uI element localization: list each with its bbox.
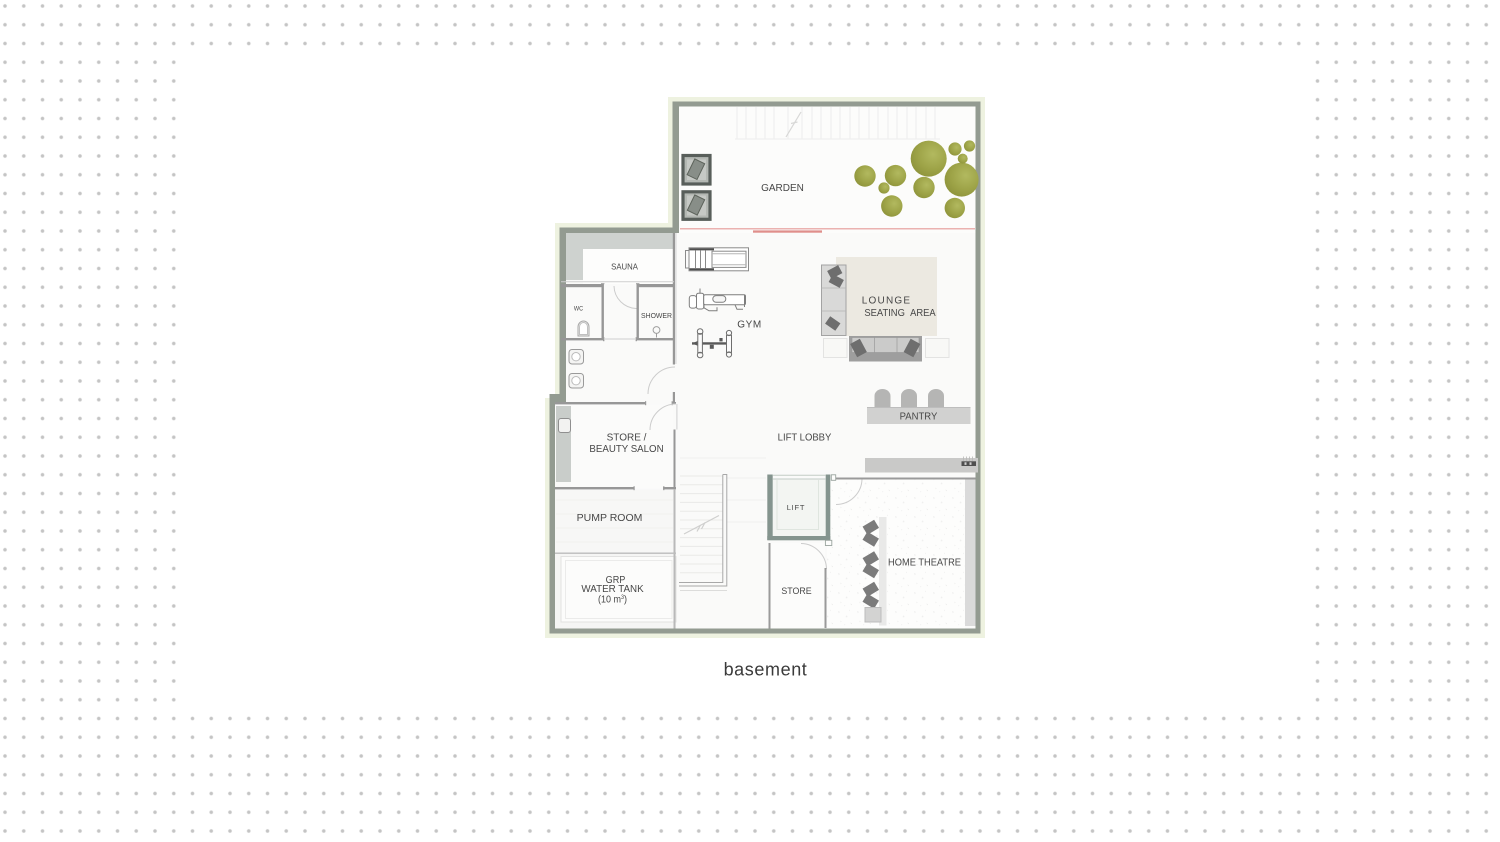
svg-text:PUMP ROOM: PUMP ROOM xyxy=(577,512,643,524)
svg-text:SHOWER: SHOWER xyxy=(641,311,672,320)
svg-text:basement: basement xyxy=(724,660,808,680)
svg-text:PANTRY: PANTRY xyxy=(900,411,938,422)
svg-text:STORE: STORE xyxy=(781,586,811,596)
svg-text:HOME THEATRE: HOME THEATRE xyxy=(888,557,961,568)
svg-text:LIFT LOBBY: LIFT LOBBY xyxy=(778,432,832,443)
svg-text:LIFT: LIFT xyxy=(787,503,806,512)
svg-text:BEAUTY SALON: BEAUTY SALON xyxy=(589,444,663,455)
svg-text:STORE /: STORE / xyxy=(607,432,647,443)
svg-text:LOUNGE: LOUNGE xyxy=(862,296,911,307)
svg-text:GYM: GYM xyxy=(737,319,762,330)
svg-text:GARDEN: GARDEN xyxy=(761,183,804,194)
svg-text:WATER TANK: WATER TANK xyxy=(581,584,644,595)
svg-text:SAUNA: SAUNA xyxy=(611,262,638,271)
svg-text:SEATING AREA: SEATING AREA xyxy=(864,308,936,319)
svg-text:WC: WC xyxy=(574,306,584,312)
